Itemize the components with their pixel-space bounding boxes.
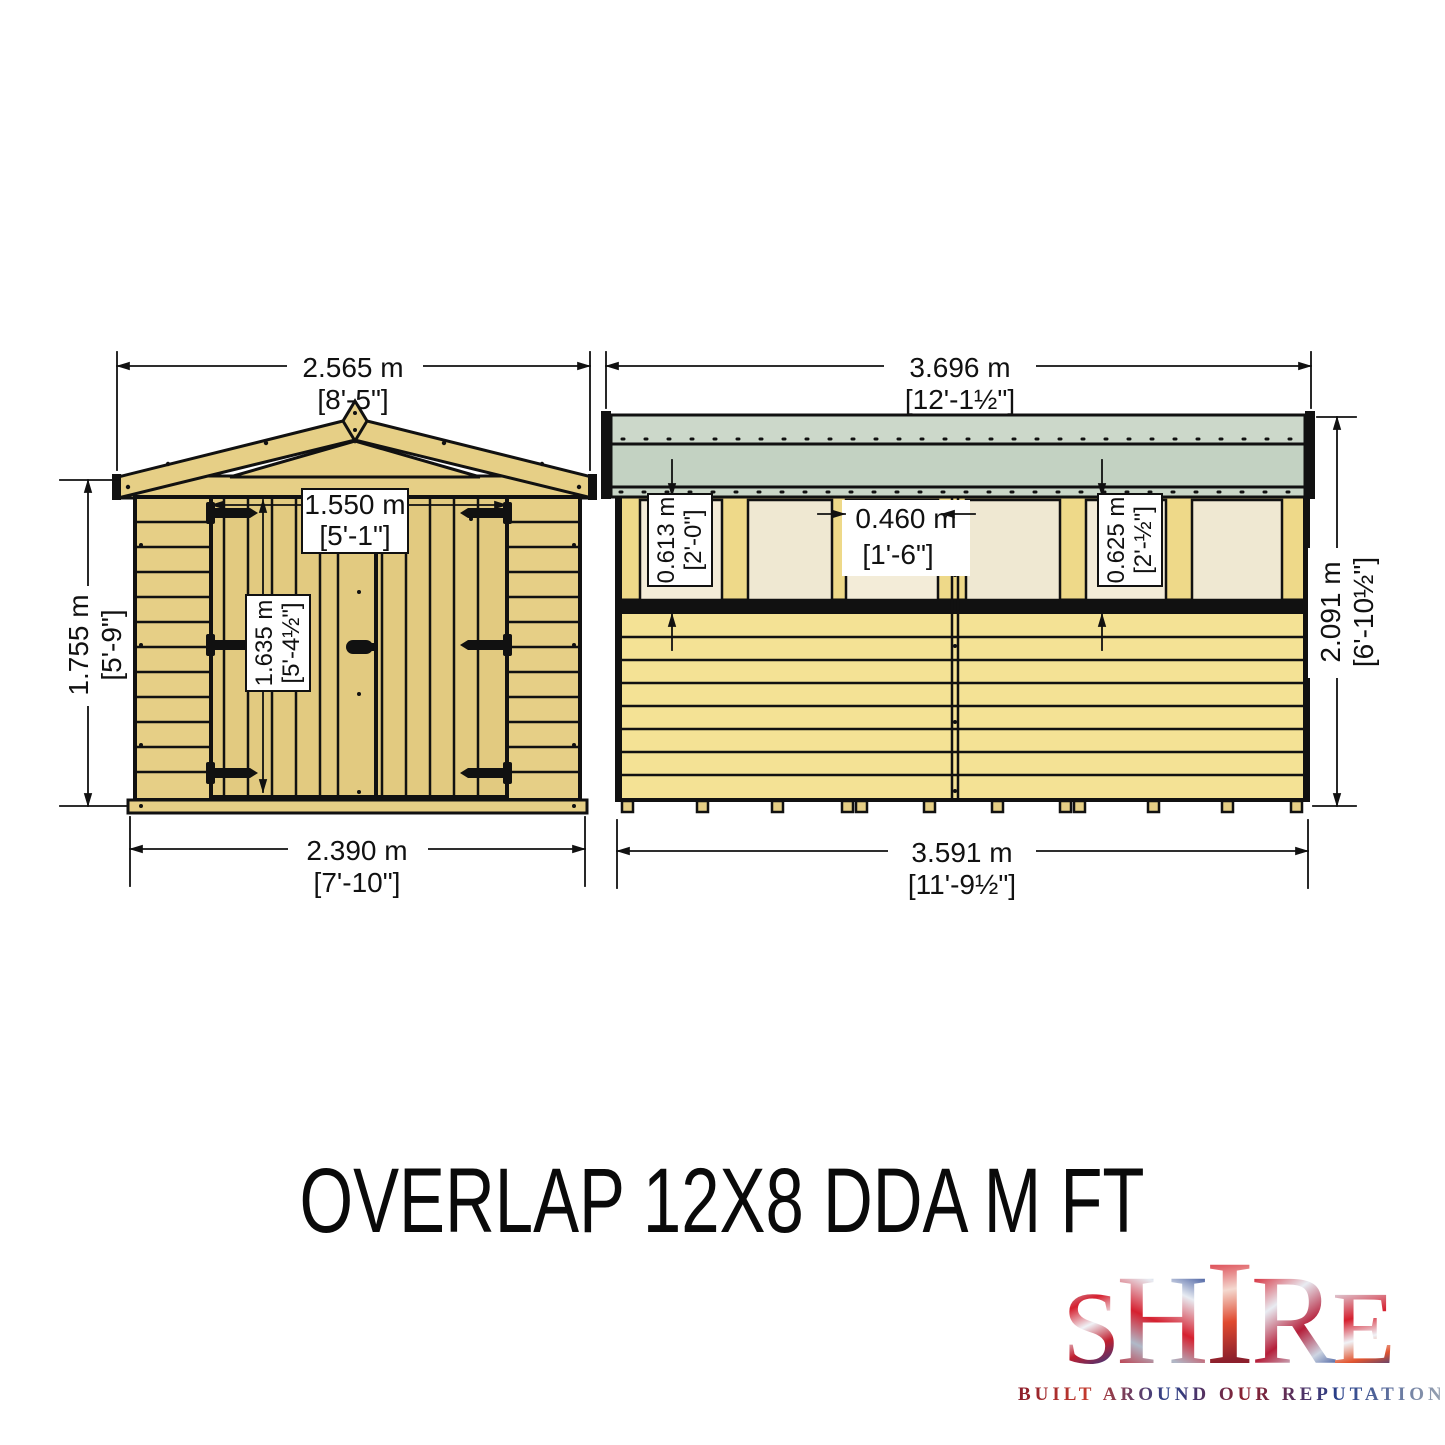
window-width-ft: [1'-6"] <box>862 539 933 570</box>
front-roof-width-ft: [8'-5"] <box>317 384 388 415</box>
window-height-right-ft: [2'-½"] <box>1130 506 1157 574</box>
front-base <box>128 800 587 813</box>
eave-cap-right <box>588 474 597 500</box>
logo-letter: I <box>1205 1244 1255 1382</box>
side-roof <box>601 411 1315 499</box>
side-wall-height-ft: [6'-10½"] <box>1348 557 1379 667</box>
logo-letter: S <box>1062 1281 1120 1377</box>
front-door-width-m: 1.550 m <box>304 489 405 520</box>
window-panel <box>1192 500 1282 600</box>
side-feet <box>622 801 1302 812</box>
front-door-height-ft: [5'-4½"] <box>278 602 305 683</box>
shire-logo: S H I R E BUILT AROUND OUR REPUTATION <box>1018 1244 1440 1406</box>
dim-side-base-length: 3.591 m [11'-9½"] <box>617 820 1308 900</box>
roof-cap-left <box>601 411 611 499</box>
shire-logo-wordmark: S H I R E <box>1018 1244 1440 1382</box>
front-roof-width-m: 2.565 m <box>302 352 403 383</box>
logo-letter: E <box>1332 1281 1396 1377</box>
window-height-left-ft: [2'-0"] <box>680 509 707 570</box>
side-base-length-m: 3.591 m <box>911 837 1012 868</box>
logo-letter: R <box>1251 1262 1336 1380</box>
front-wall-height-m: 1.755 m <box>63 594 94 695</box>
product-title: OVERLAP 12X8 DDA M FT <box>300 1150 1145 1252</box>
logo-tagline: BUILT AROUND OUR REPUTATION <box>1018 1384 1440 1406</box>
side-roof-length-ft: [12'-1½"] <box>905 384 1015 415</box>
front-wall-height-ft: [5'-9"] <box>96 609 127 680</box>
side-roof-length-m: 3.696 m <box>909 352 1010 383</box>
logo-letter: H <box>1116 1262 1208 1380</box>
roof-cap-right <box>1305 411 1315 499</box>
side-base-length-ft: [11'-9½"] <box>908 869 1016 900</box>
dim-front-wall-height: 1.755 m [5'-9"] <box>54 480 132 806</box>
side-wall-height-m: 2.091 m <box>1315 561 1346 662</box>
window-panel <box>966 500 1060 600</box>
front-roof <box>112 401 597 500</box>
window-panel <box>748 500 832 600</box>
dim-front-base-width: 2.390 m [7'-10"] <box>130 817 585 898</box>
shed-spec-sheet: 2.565 m [8'-5"] 1.755 m [5'-9"] 1.550 m … <box>0 0 1445 1445</box>
eave-cap-left <box>112 474 121 500</box>
corner-trim-left <box>615 497 622 800</box>
side-elevation: 3.696 m [12'-1½"] 0.613 m [2'-0"] 0.460 … <box>601 344 1392 900</box>
dim-side-roof-length: 3.696 m [12'-1½"] <box>606 344 1311 415</box>
window-height-left-m: 0.613 m <box>653 497 680 584</box>
window-width-m: 0.460 m <box>855 503 956 534</box>
front-base-width-ft: [7'-10"] <box>314 867 401 898</box>
dim-side-wall-height: 2.091 m [6'-10½"] <box>1308 417 1392 806</box>
front-door-height-m: 1.635 m <box>251 600 278 687</box>
window-height-right-m: 0.625 m <box>1103 497 1130 584</box>
front-base-width-m: 2.390 m <box>306 835 407 866</box>
front-elevation: 2.565 m [8'-5"] 1.755 m [5'-9"] 1.550 m … <box>54 344 597 898</box>
front-door-width-ft: [5'-1"] <box>319 520 390 551</box>
shed-dimension-diagram: 2.565 m [8'-5"] 1.755 m [5'-9"] 1.550 m … <box>0 0 1445 1445</box>
